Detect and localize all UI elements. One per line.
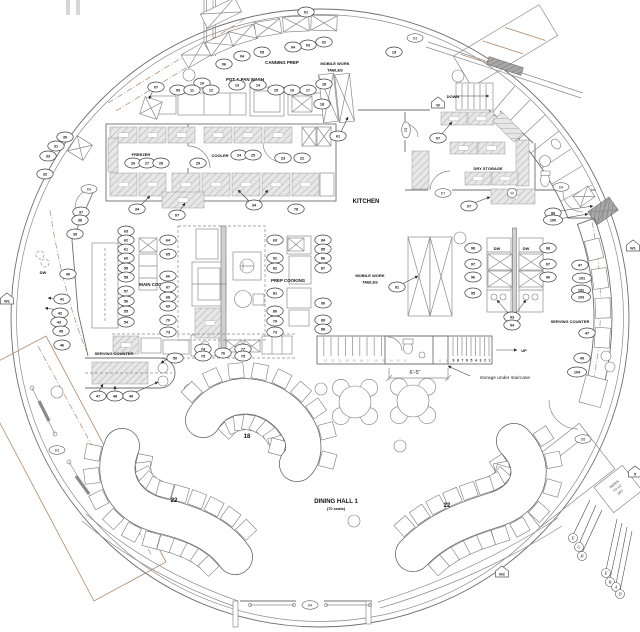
svg-text:66: 66 bbox=[166, 275, 170, 279]
callout-bubble: 97 bbox=[465, 259, 481, 269]
serving-counter-left-label: SERVING COUNTER bbox=[95, 351, 134, 356]
door-tag: D3 bbox=[407, 34, 423, 43]
callout-bubble: 19 bbox=[386, 47, 402, 57]
callout-bubble: 87 bbox=[315, 263, 331, 273]
callout-bubble: 65 bbox=[160, 249, 176, 259]
svg-text:68: 68 bbox=[166, 296, 170, 300]
equipment-unit bbox=[141, 338, 161, 353]
dining-chair bbox=[318, 422, 336, 440]
section-letter-tag: G bbox=[575, 543, 584, 552]
callout-bubble: 98 bbox=[465, 243, 481, 253]
svg-text:58: 58 bbox=[124, 276, 128, 280]
callout-bubble: 64 bbox=[160, 235, 176, 245]
svg-text:97: 97 bbox=[471, 263, 475, 267]
shelf-unit bbox=[108, 138, 118, 172]
column bbox=[51, 386, 63, 398]
callout-bubble: 73 bbox=[160, 327, 176, 337]
svg-text:63: 63 bbox=[124, 230, 128, 234]
callout-bubble: 68 bbox=[160, 292, 176, 302]
svg-text:80: 80 bbox=[273, 310, 277, 314]
callout-bubble: 05 bbox=[254, 47, 270, 57]
callout-bubble: 104 bbox=[568, 367, 587, 377]
callout-bubble: 40 bbox=[60, 269, 76, 279]
svg-text:67: 67 bbox=[166, 286, 170, 290]
callout-bubble: 58 bbox=[118, 272, 134, 282]
shelf-label-chip bbox=[119, 133, 129, 137]
callout-bubble: 07 bbox=[430, 133, 446, 143]
svg-text:63: 63 bbox=[273, 239, 277, 243]
svg-text:73: 73 bbox=[166, 331, 170, 335]
tread-number: 16 bbox=[374, 359, 378, 363]
svg-text:85: 85 bbox=[321, 248, 325, 252]
callout-bubble: 13 bbox=[229, 80, 245, 90]
tread-number: 23 bbox=[324, 359, 328, 363]
tread-number: 9 bbox=[453, 359, 455, 363]
svg-text:30: 30 bbox=[63, 136, 67, 140]
section-letter-tag: E bbox=[569, 534, 578, 543]
svg-text:92: 92 bbox=[273, 257, 277, 261]
equipment-unit bbox=[320, 173, 334, 196]
callout-bubble: 34 bbox=[246, 200, 262, 210]
tread-number: 22 bbox=[331, 359, 335, 363]
callout-bubble: 79 bbox=[267, 316, 283, 326]
work-table bbox=[573, 186, 595, 207]
work-table bbox=[139, 238, 157, 252]
callout-bubble: 49 bbox=[123, 391, 139, 401]
equipment-unit bbox=[287, 288, 311, 308]
callout-bubble: 59 bbox=[118, 263, 134, 273]
svg-text:57: 57 bbox=[124, 290, 128, 294]
work-table bbox=[292, 96, 312, 112]
shelf-label-chip bbox=[476, 116, 486, 120]
svg-text:101: 101 bbox=[579, 277, 585, 281]
svg-text:W: W bbox=[436, 103, 440, 107]
svg-text:06: 06 bbox=[222, 63, 226, 67]
tread-number: 12 bbox=[403, 359, 407, 363]
shelf-label-chip bbox=[243, 133, 253, 137]
shelf-label-chip bbox=[271, 182, 281, 186]
column bbox=[454, 232, 466, 244]
svg-text:33: 33 bbox=[46, 155, 50, 159]
tread-number: 10 bbox=[445, 359, 449, 363]
svg-text:65: 65 bbox=[166, 253, 170, 257]
svg-text:61: 61 bbox=[336, 135, 340, 139]
svg-text:49: 49 bbox=[580, 357, 584, 361]
work-table bbox=[311, 15, 338, 31]
callout-bubble: 97 bbox=[540, 259, 556, 269]
tread-number: 8 bbox=[457, 359, 459, 363]
callout-bubble: 03 bbox=[300, 40, 316, 50]
callout-bubble: 54 bbox=[118, 317, 134, 327]
banquet-table-18-label: 18 bbox=[244, 434, 251, 440]
shelf-label-chip bbox=[273, 133, 283, 137]
svg-text:47: 47 bbox=[585, 332, 589, 336]
svg-text:86: 86 bbox=[321, 257, 325, 261]
svg-text:45: 45 bbox=[59, 330, 63, 334]
shelf-label-chip bbox=[301, 182, 311, 186]
callout-bubble: 14 bbox=[250, 80, 266, 90]
svg-text:D4: D4 bbox=[308, 603, 313, 607]
callout-bubble: 61 bbox=[118, 244, 134, 254]
svg-text:16: 16 bbox=[290, 89, 294, 93]
shelf-label-chip bbox=[473, 176, 483, 180]
dining-chair bbox=[228, 363, 245, 380]
callout-bubble: 101 bbox=[573, 273, 592, 283]
svg-text:12: 12 bbox=[209, 89, 213, 93]
shelf-label-chip bbox=[487, 146, 497, 150]
svg-text:D3: D3 bbox=[55, 448, 60, 452]
shelf-label-chip bbox=[211, 182, 221, 186]
svg-text:D2: D2 bbox=[404, 128, 408, 133]
svg-text:75: 75 bbox=[201, 355, 205, 359]
stairs-up-label: UP bbox=[521, 348, 527, 353]
callout-bubble: 33 bbox=[40, 151, 56, 161]
stairs-down-label: DOWN bbox=[447, 94, 460, 99]
callout-bubble: 43 bbox=[51, 317, 67, 327]
callout-bubble: 07 bbox=[148, 82, 164, 92]
callout-bubble: 94 bbox=[504, 320, 520, 330]
door-tag: D9 bbox=[553, 183, 569, 192]
svg-text:05: 05 bbox=[260, 51, 264, 55]
work-table bbox=[283, 16, 310, 32]
callout-bubble: 18 bbox=[316, 79, 332, 89]
svg-text:W1: W1 bbox=[630, 246, 636, 250]
callout-bubble: 11 bbox=[184, 85, 200, 95]
callout-bubble: 18 bbox=[314, 99, 330, 109]
equipment-unit bbox=[163, 340, 189, 354]
callout-bubble: 84 bbox=[315, 235, 331, 245]
svg-text:59: 59 bbox=[124, 267, 128, 271]
mobile-work-tables-2-label: MOBILE WORK bbox=[355, 273, 384, 278]
svg-text:93: 93 bbox=[510, 316, 514, 320]
mobile-work-tables-1-label2: TABLES bbox=[327, 68, 343, 73]
svg-text:37: 37 bbox=[79, 211, 83, 215]
svg-text:18: 18 bbox=[320, 103, 324, 107]
callout-bubble: 01 bbox=[298, 7, 314, 17]
callout-bubble: 80 bbox=[267, 306, 283, 316]
tread-number: 14 bbox=[389, 359, 393, 363]
svg-text:70: 70 bbox=[166, 319, 170, 323]
callout-bubble: 89 bbox=[315, 315, 331, 325]
svg-text:10: 10 bbox=[200, 82, 204, 86]
svg-text:69: 69 bbox=[166, 305, 170, 309]
stair-dimension: 6'-5" bbox=[410, 370, 421, 376]
callout-bubble: 41 bbox=[54, 294, 70, 304]
round-table bbox=[339, 386, 371, 418]
column bbox=[183, 69, 195, 81]
callout-bubble: 02 bbox=[316, 37, 332, 47]
svg-text:75: 75 bbox=[241, 355, 245, 359]
svg-text:41: 41 bbox=[60, 298, 64, 302]
serving-counter-right-label: SERVING COUNTER bbox=[551, 319, 590, 324]
work-table bbox=[254, 19, 282, 38]
window-circle-tag: W bbox=[507, 188, 517, 198]
callout-bubble: 22 bbox=[294, 153, 310, 163]
callout-bubble: 34 bbox=[129, 204, 145, 214]
round-table bbox=[397, 385, 429, 417]
mobile-work-tables-1-label: MOBILE WORK bbox=[320, 61, 349, 66]
tread-number: 11 bbox=[438, 359, 441, 363]
svg-text:87: 87 bbox=[321, 267, 325, 271]
svg-text:29: 29 bbox=[196, 162, 200, 166]
callout-bubble: 75 bbox=[195, 351, 211, 361]
svg-text:07: 07 bbox=[467, 205, 471, 209]
tread-number: 15 bbox=[381, 359, 385, 363]
dry-storage-label: DRY STORAGE bbox=[473, 166, 502, 171]
shelf-label-chip bbox=[241, 182, 251, 186]
column bbox=[315, 383, 327, 395]
callout-bubble: 16 bbox=[284, 85, 300, 95]
svg-text:26: 26 bbox=[131, 162, 135, 166]
window-tag: W2 bbox=[496, 566, 509, 577]
svg-text:01: 01 bbox=[304, 11, 308, 15]
shelf-label-chip bbox=[449, 116, 459, 120]
callout-bubble: 47 bbox=[90, 391, 106, 401]
work-table bbox=[408, 237, 430, 316]
kitchen-label: KITCHEN bbox=[353, 199, 380, 205]
callout-bubble: 69 bbox=[160, 301, 176, 311]
stair-tread-numbers-layer: 2322212019181716151413121110987654321 bbox=[324, 359, 491, 363]
callout-bubble: 04 bbox=[234, 51, 250, 61]
callout-bubble: 56 bbox=[118, 296, 134, 306]
callout-bubble: 85 bbox=[315, 244, 331, 254]
svg-text:97: 97 bbox=[546, 263, 550, 267]
callout-bubble: 100 bbox=[544, 215, 563, 225]
door-tag: D2 bbox=[402, 122, 411, 138]
svg-text:103: 103 bbox=[578, 296, 584, 300]
shelf-label-chip bbox=[205, 321, 215, 325]
tread-number: 1 bbox=[489, 359, 491, 363]
storage-under-staircase-note: storage under staircase bbox=[480, 375, 530, 381]
svg-text:62: 62 bbox=[124, 239, 128, 243]
tread-number: 4 bbox=[475, 359, 477, 363]
svg-text:46: 46 bbox=[60, 344, 64, 348]
callout-bubble: 57 bbox=[118, 286, 134, 296]
svg-text:81: 81 bbox=[273, 292, 277, 296]
shelf-label-chip bbox=[500, 176, 510, 180]
svg-text:09: 09 bbox=[176, 89, 180, 93]
callout-bubble: 78 bbox=[288, 204, 304, 214]
tread-number: 2 bbox=[484, 359, 486, 363]
equipment-unit bbox=[289, 310, 309, 326]
svg-text:B: B bbox=[609, 580, 612, 585]
svg-text:D5: D5 bbox=[581, 437, 586, 441]
tread-number: 3 bbox=[480, 359, 482, 363]
work-table bbox=[317, 127, 331, 146]
svg-text:W: W bbox=[510, 192, 514, 196]
tread-number: 21 bbox=[338, 359, 342, 363]
canning-prep-label: CANNING PREP bbox=[265, 60, 299, 65]
work-table bbox=[288, 238, 304, 251]
svg-text:78: 78 bbox=[294, 208, 298, 212]
callout-bubble: 12 bbox=[203, 85, 219, 95]
dining-chair bbox=[543, 479, 562, 498]
dining-seats-label: (70 seats) bbox=[327, 506, 346, 511]
svg-text:23: 23 bbox=[281, 157, 285, 161]
callout-bubble: 63 bbox=[267, 235, 283, 245]
svg-text:88: 88 bbox=[321, 328, 325, 332]
callout-bubble: 91 bbox=[389, 282, 405, 292]
callout-bubble: 98 bbox=[540, 243, 556, 253]
svg-text:25: 25 bbox=[251, 154, 255, 158]
callout-bubble: 32 bbox=[37, 169, 53, 179]
callout-bubble: 45 bbox=[53, 326, 69, 336]
svg-text:91: 91 bbox=[395, 286, 399, 290]
svg-text:47: 47 bbox=[96, 395, 100, 399]
work-table bbox=[302, 127, 316, 146]
tread-number: 5 bbox=[471, 359, 473, 363]
svg-text:E: E bbox=[571, 536, 575, 541]
callout-bubble: 62 bbox=[118, 235, 134, 245]
svg-text:D9: D9 bbox=[87, 187, 92, 191]
column bbox=[452, 70, 464, 82]
callout-bubble: 96 bbox=[540, 272, 556, 282]
callout-bubble: 103 bbox=[572, 292, 591, 302]
svg-text:17: 17 bbox=[306, 89, 310, 93]
shelf-label-chip bbox=[148, 182, 158, 186]
dining-chair bbox=[84, 444, 102, 462]
callout-bubble: 70 bbox=[160, 315, 176, 325]
svg-text:5: 5 bbox=[634, 472, 636, 476]
shelf-label-chip bbox=[148, 133, 158, 137]
window-tag: W bbox=[432, 97, 445, 108]
shelf-label-chip bbox=[213, 133, 223, 137]
work-table bbox=[519, 271, 543, 287]
svg-text:76: 76 bbox=[221, 352, 225, 356]
svg-text:48: 48 bbox=[113, 395, 117, 399]
callout-bubble: 15 bbox=[268, 85, 284, 95]
svg-text:D9: D9 bbox=[559, 185, 564, 189]
callout-bubble: 61 bbox=[330, 131, 346, 141]
equipment-unit bbox=[196, 229, 218, 259]
floor-plan-page: REFER TO 1/2 DET bbox=[0, 0, 640, 632]
dining-chair bbox=[319, 451, 337, 469]
tread-number: 17 bbox=[367, 359, 371, 363]
mobile-work-tables-2-label2: TABLES bbox=[362, 280, 378, 285]
equipment-unit bbox=[178, 93, 246, 115]
column bbox=[394, 440, 406, 452]
cooler-label: COOLER bbox=[211, 153, 228, 158]
banquet-table-22b-label: 22 bbox=[444, 503, 451, 509]
callout-bubble: 73 bbox=[267, 327, 283, 337]
svg-text:22: 22 bbox=[300, 157, 304, 161]
svg-text:98: 98 bbox=[546, 247, 550, 251]
svg-text:28: 28 bbox=[159, 162, 163, 166]
work-table bbox=[519, 254, 543, 270]
svg-text:90: 90 bbox=[321, 302, 325, 306]
tread-number: 18 bbox=[360, 359, 364, 363]
wall-flue bbox=[221, 226, 226, 354]
callout-bubble: 30 bbox=[57, 132, 73, 142]
svg-text:55: 55 bbox=[124, 310, 128, 314]
svg-text:39: 39 bbox=[73, 233, 77, 237]
callout-bubble: 50 bbox=[167, 353, 183, 363]
svg-text:W1: W1 bbox=[4, 299, 10, 303]
callout-bubble: 96 bbox=[465, 272, 481, 282]
callout-bubble: 55 bbox=[118, 306, 134, 316]
svg-text:03: 03 bbox=[306, 44, 310, 48]
equipment-unit bbox=[253, 294, 264, 305]
dining-chair bbox=[251, 363, 269, 381]
door-tag: D7 bbox=[435, 189, 451, 198]
callout-bubble: 76 bbox=[215, 348, 231, 358]
callout-bubble: 07 bbox=[461, 201, 477, 211]
tread-number: 20 bbox=[345, 359, 349, 363]
shelf-label-chip bbox=[121, 343, 131, 347]
svg-text:82: 82 bbox=[273, 267, 277, 271]
svg-text:15: 15 bbox=[274, 89, 278, 93]
floor-plan-drawing: REFER TO 1/2 DET bbox=[0, 0, 640, 632]
freezer-label: FREEZER bbox=[132, 152, 151, 157]
svg-text:07: 07 bbox=[436, 137, 440, 141]
callout-bubble: 38 bbox=[72, 215, 88, 225]
svg-text:11: 11 bbox=[190, 89, 194, 93]
work-table bbox=[430, 237, 452, 316]
svg-text:60: 60 bbox=[124, 257, 128, 261]
svg-text:73: 73 bbox=[273, 331, 277, 335]
callout-bubble: 86 bbox=[315, 253, 331, 263]
shelf-label-chip bbox=[459, 146, 469, 150]
staircases bbox=[324, 84, 517, 381]
svg-text:31: 31 bbox=[54, 145, 58, 149]
svg-text:A: A bbox=[614, 585, 618, 590]
door-tag: D9 bbox=[81, 185, 97, 194]
callout-bubble: 47 bbox=[579, 328, 595, 338]
callout-bubble: 88 bbox=[315, 324, 331, 334]
callout-bubble: 67 bbox=[160, 282, 176, 292]
svg-text:49: 49 bbox=[129, 395, 133, 399]
svg-text:38: 38 bbox=[78, 219, 82, 223]
svg-text:96: 96 bbox=[546, 276, 550, 280]
window-tag: W1 bbox=[627, 240, 640, 251]
svg-text:42: 42 bbox=[58, 312, 62, 316]
callout-bubble: 92 bbox=[267, 253, 283, 263]
svg-text:50: 50 bbox=[173, 357, 177, 361]
callout-bubble: 75 bbox=[235, 351, 251, 361]
svg-text:100: 100 bbox=[550, 219, 556, 223]
tread-number: 7 bbox=[462, 359, 464, 363]
dishwasher-serving-label: DW bbox=[40, 270, 47, 275]
svg-text:43: 43 bbox=[57, 321, 61, 325]
shelf-label-chip bbox=[177, 133, 187, 137]
svg-text:98: 98 bbox=[471, 247, 475, 251]
svg-text:18: 18 bbox=[322, 83, 326, 87]
door-tag: D5 bbox=[575, 435, 591, 444]
section-letter-tag: E bbox=[602, 569, 611, 578]
callout-bubble: 82 bbox=[267, 263, 283, 273]
work-table bbox=[488, 254, 512, 270]
svg-text:02: 02 bbox=[322, 41, 326, 45]
callout-bubble: 17 bbox=[300, 85, 316, 95]
callout-bubble: 46 bbox=[54, 340, 70, 350]
callout-bubble: 04 bbox=[285, 42, 301, 52]
tread-number: 6 bbox=[466, 359, 468, 363]
svg-text:W2: W2 bbox=[499, 572, 505, 576]
svg-text:47: 47 bbox=[578, 264, 582, 268]
callout-bubble: 90 bbox=[315, 298, 331, 308]
section-letter-tag: D bbox=[616, 590, 625, 599]
svg-text:61: 61 bbox=[124, 248, 128, 252]
callout-bubble: 60 bbox=[118, 253, 134, 263]
callout-bubble: 42 bbox=[52, 308, 68, 318]
tread-number: 19 bbox=[353, 359, 357, 363]
callout-bubble: 48 bbox=[107, 391, 123, 401]
svg-text:D3: D3 bbox=[413, 36, 418, 40]
dishwasher-right-label: DW bbox=[523, 246, 530, 251]
svg-text:13: 13 bbox=[235, 84, 239, 88]
door-tag: D3 bbox=[49, 446, 65, 455]
callout-bubble: 23 bbox=[275, 153, 291, 163]
